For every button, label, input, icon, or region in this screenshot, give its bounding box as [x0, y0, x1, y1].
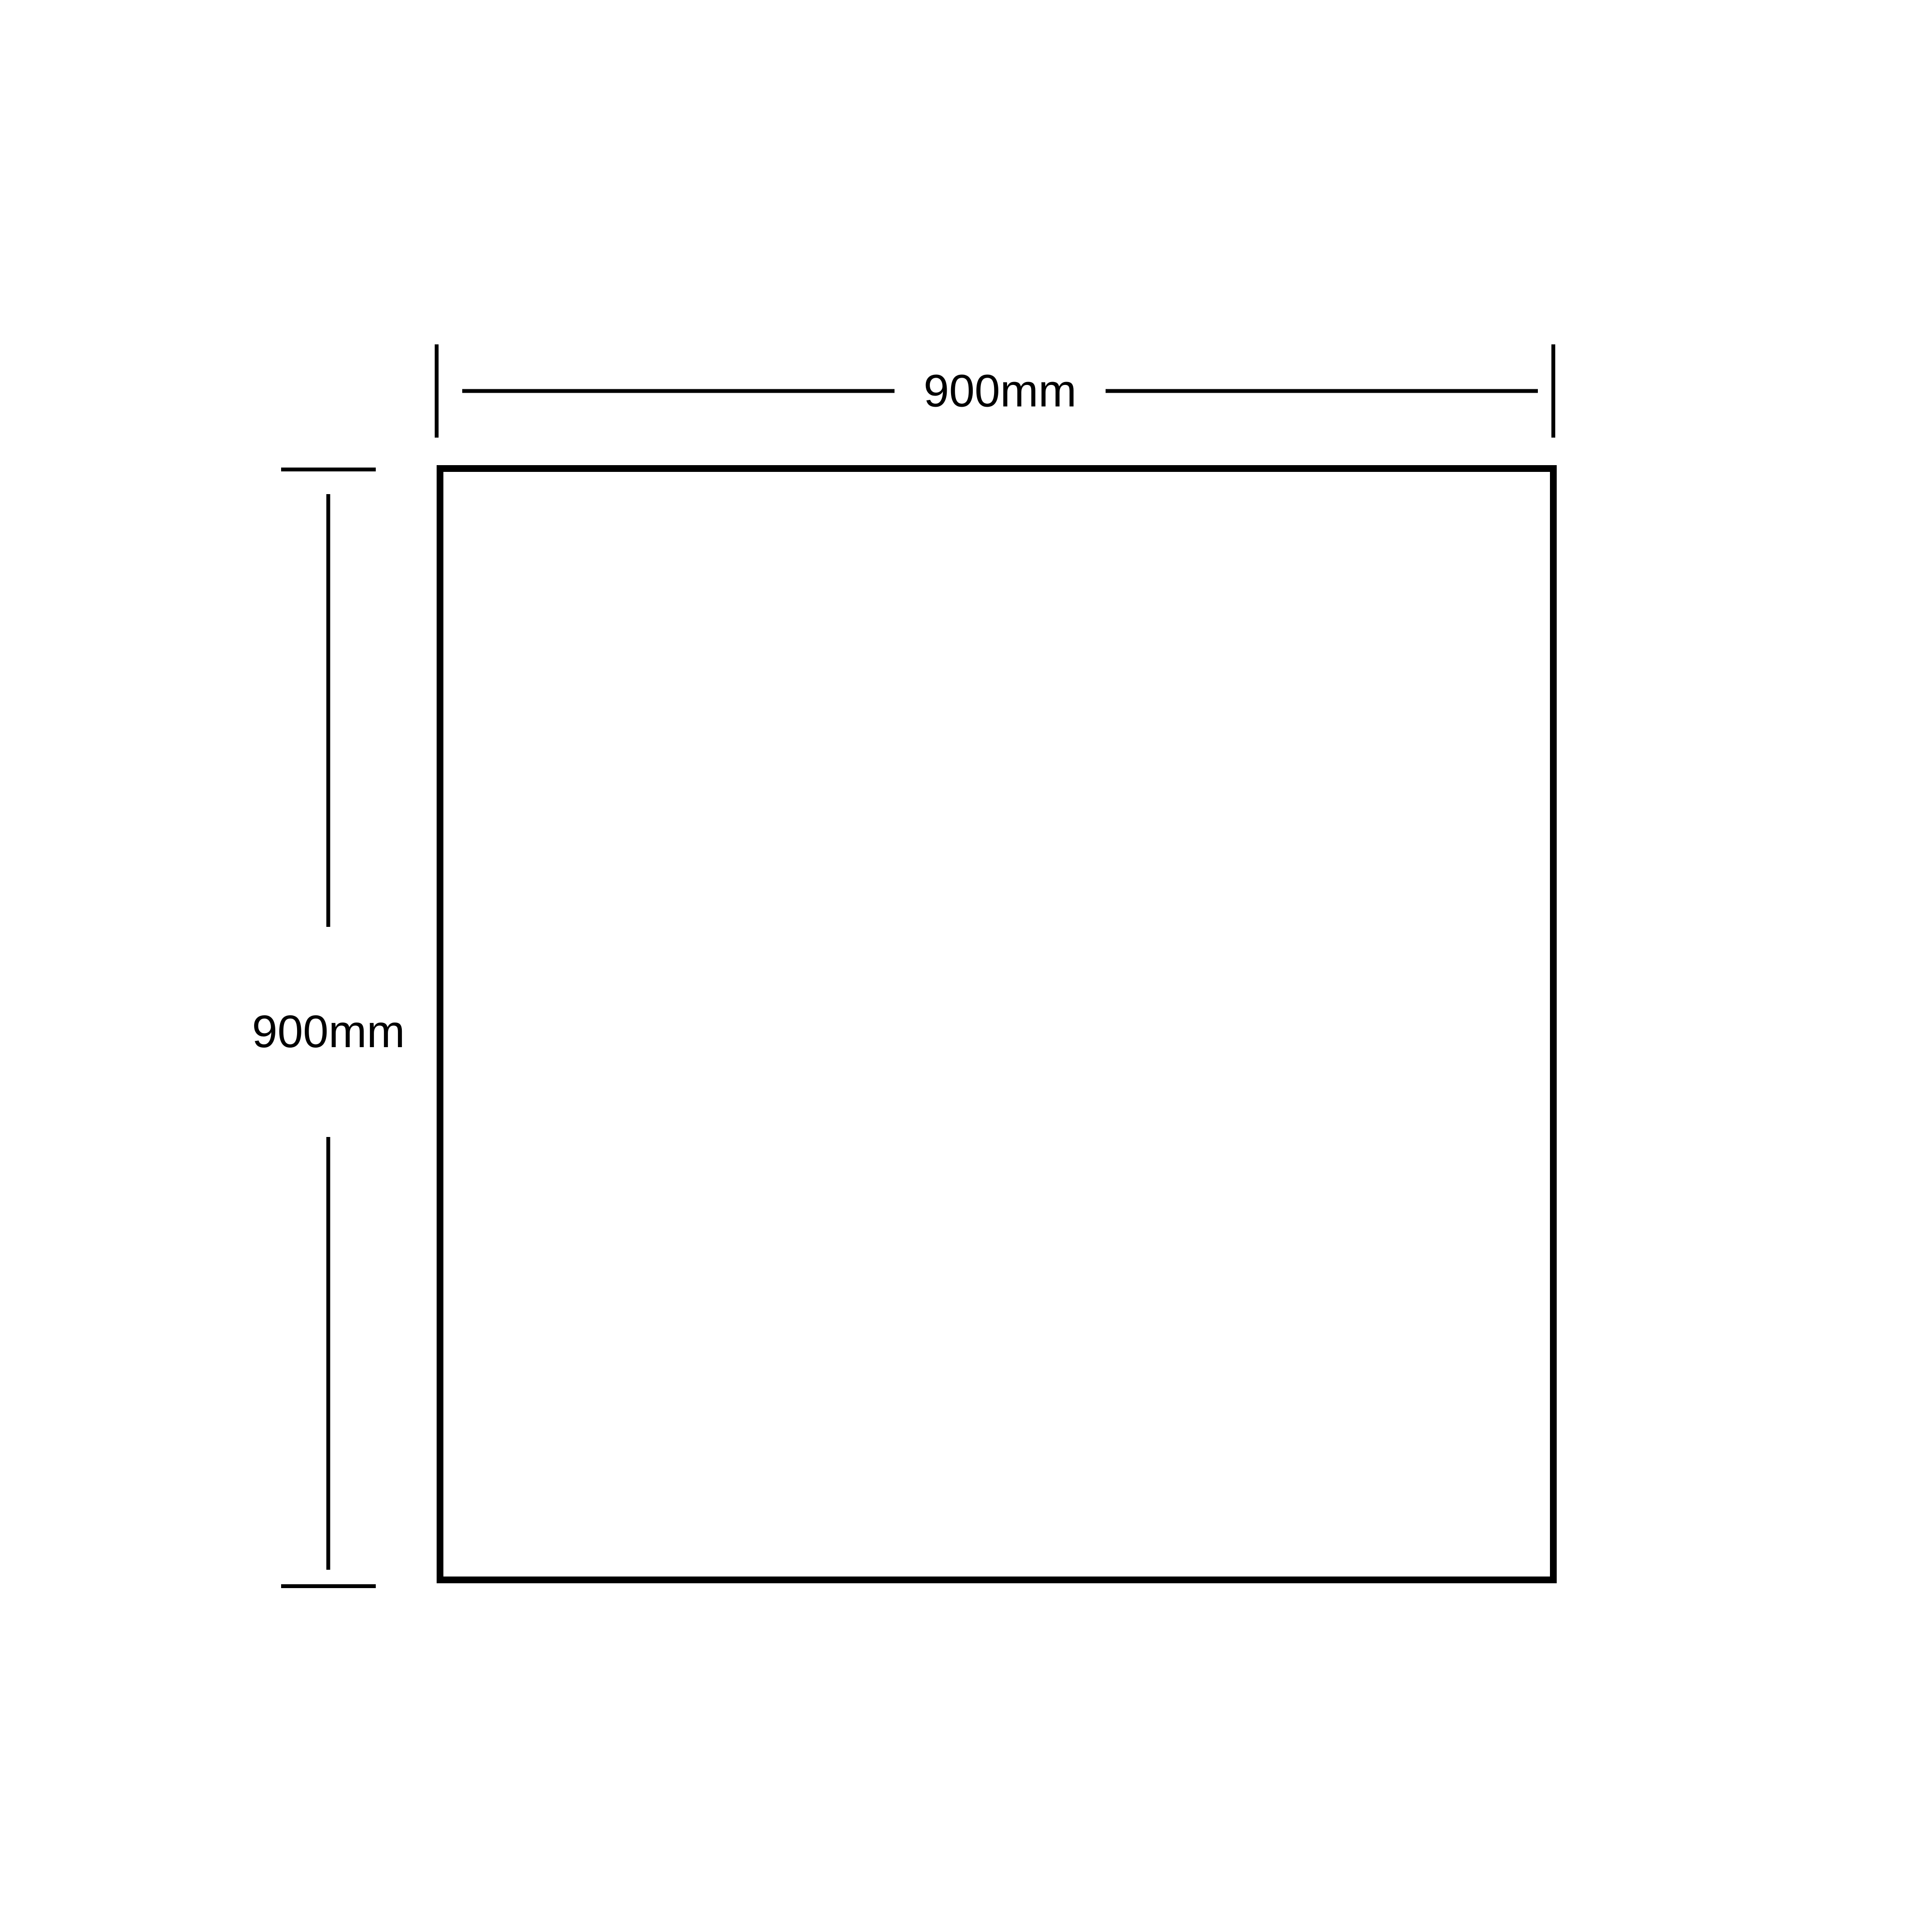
height-dimension-tick-bottom — [281, 1584, 376, 1588]
height-dimension-line-segment-upper — [327, 494, 330, 927]
height-dimension-line: 900mm — [252, 494, 405, 1570]
square-outline — [437, 465, 1557, 1583]
width-dimension-line-segment-right — [1106, 389, 1538, 393]
height-dimension: 900mm — [281, 468, 376, 1588]
width-dimension-line: 900mm — [462, 368, 1538, 414]
width-dimension-tick-left — [435, 344, 439, 438]
height-dimension-line-segment-lower — [327, 1137, 330, 1570]
width-dimension: 900mm — [435, 344, 1555, 438]
width-dimension-label: 900mm — [923, 368, 1077, 414]
width-dimension-line-segment-left — [462, 389, 895, 393]
height-dimension-tick-top — [281, 468, 376, 471]
width-dimension-tick-right — [1551, 344, 1555, 438]
height-dimension-label: 900mm — [252, 1009, 405, 1055]
drawing-canvas: 900mm 900mm — [0, 0, 1932, 1932]
